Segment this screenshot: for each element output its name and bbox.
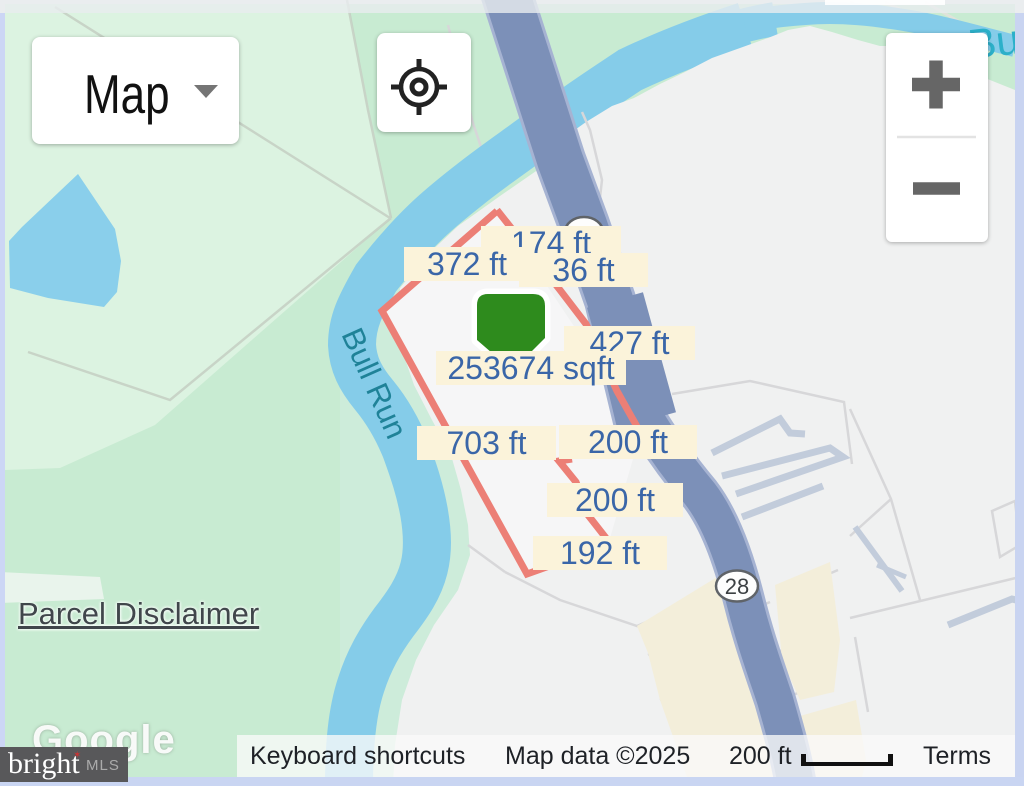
svg-text:28: 28 xyxy=(725,574,749,599)
